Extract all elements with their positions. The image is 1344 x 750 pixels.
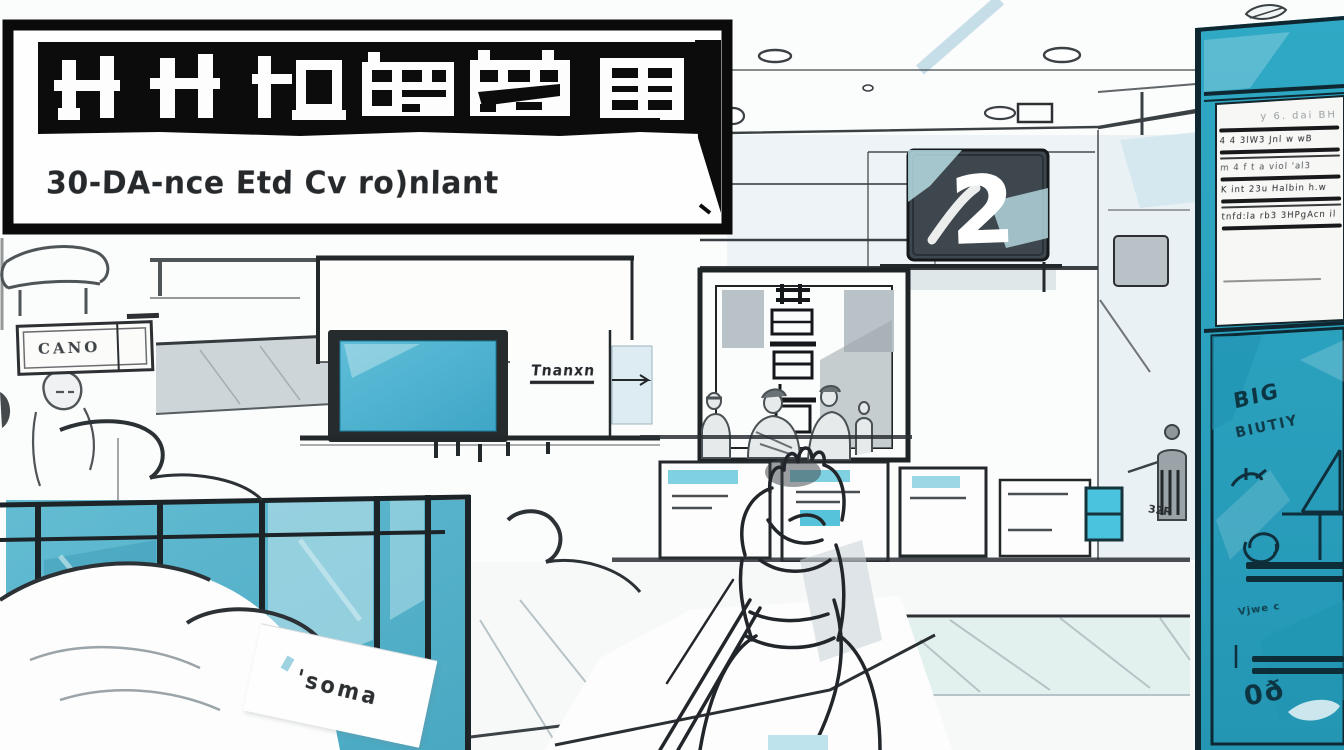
signboard-and-monitor	[300, 256, 660, 462]
notice-rule	[1223, 278, 1321, 283]
notice-line: m 4 f t a viol 'al3	[1220, 159, 1340, 174]
notice-gap	[1222, 230, 1343, 277]
notice-rule	[1221, 196, 1341, 203]
notice-rule	[1221, 203, 1341, 208]
notice-line: K int 23u Halbin h.w	[1221, 181, 1341, 196]
notice-header: y 6. dai BH	[1219, 110, 1337, 124]
notice-rule	[1222, 223, 1342, 230]
back-counter-opening	[700, 270, 908, 460]
note-card-text: 'soma	[294, 665, 382, 711]
notice-rule	[1221, 174, 1341, 181]
banner-subtitle: 30-DA-nce Etd Cv ro)nlant	[46, 165, 687, 201]
notice-rule	[1220, 154, 1340, 159]
kiosk-notice-content: y 6. dai BH 4 4 3lW3 Jnl w wB m 4 f t a …	[1219, 105, 1344, 285]
teller-label: Tnanxn	[530, 362, 596, 384]
notice-line: 4 4 3lW3 Jnl w wB	[1219, 132, 1339, 147]
sketch-scene: 2	[0, 0, 1344, 750]
gray-desk	[156, 336, 332, 414]
notice-line: tnfd:la rb3 3HPgAcn il	[1221, 208, 1341, 223]
notice-rule	[1220, 147, 1340, 154]
scene-artwork: 2	[0, 0, 1344, 750]
notice-rule	[1219, 125, 1339, 132]
cano-plaque-label: CANO	[38, 338, 101, 358]
note-card-tick-icon	[281, 656, 295, 672]
